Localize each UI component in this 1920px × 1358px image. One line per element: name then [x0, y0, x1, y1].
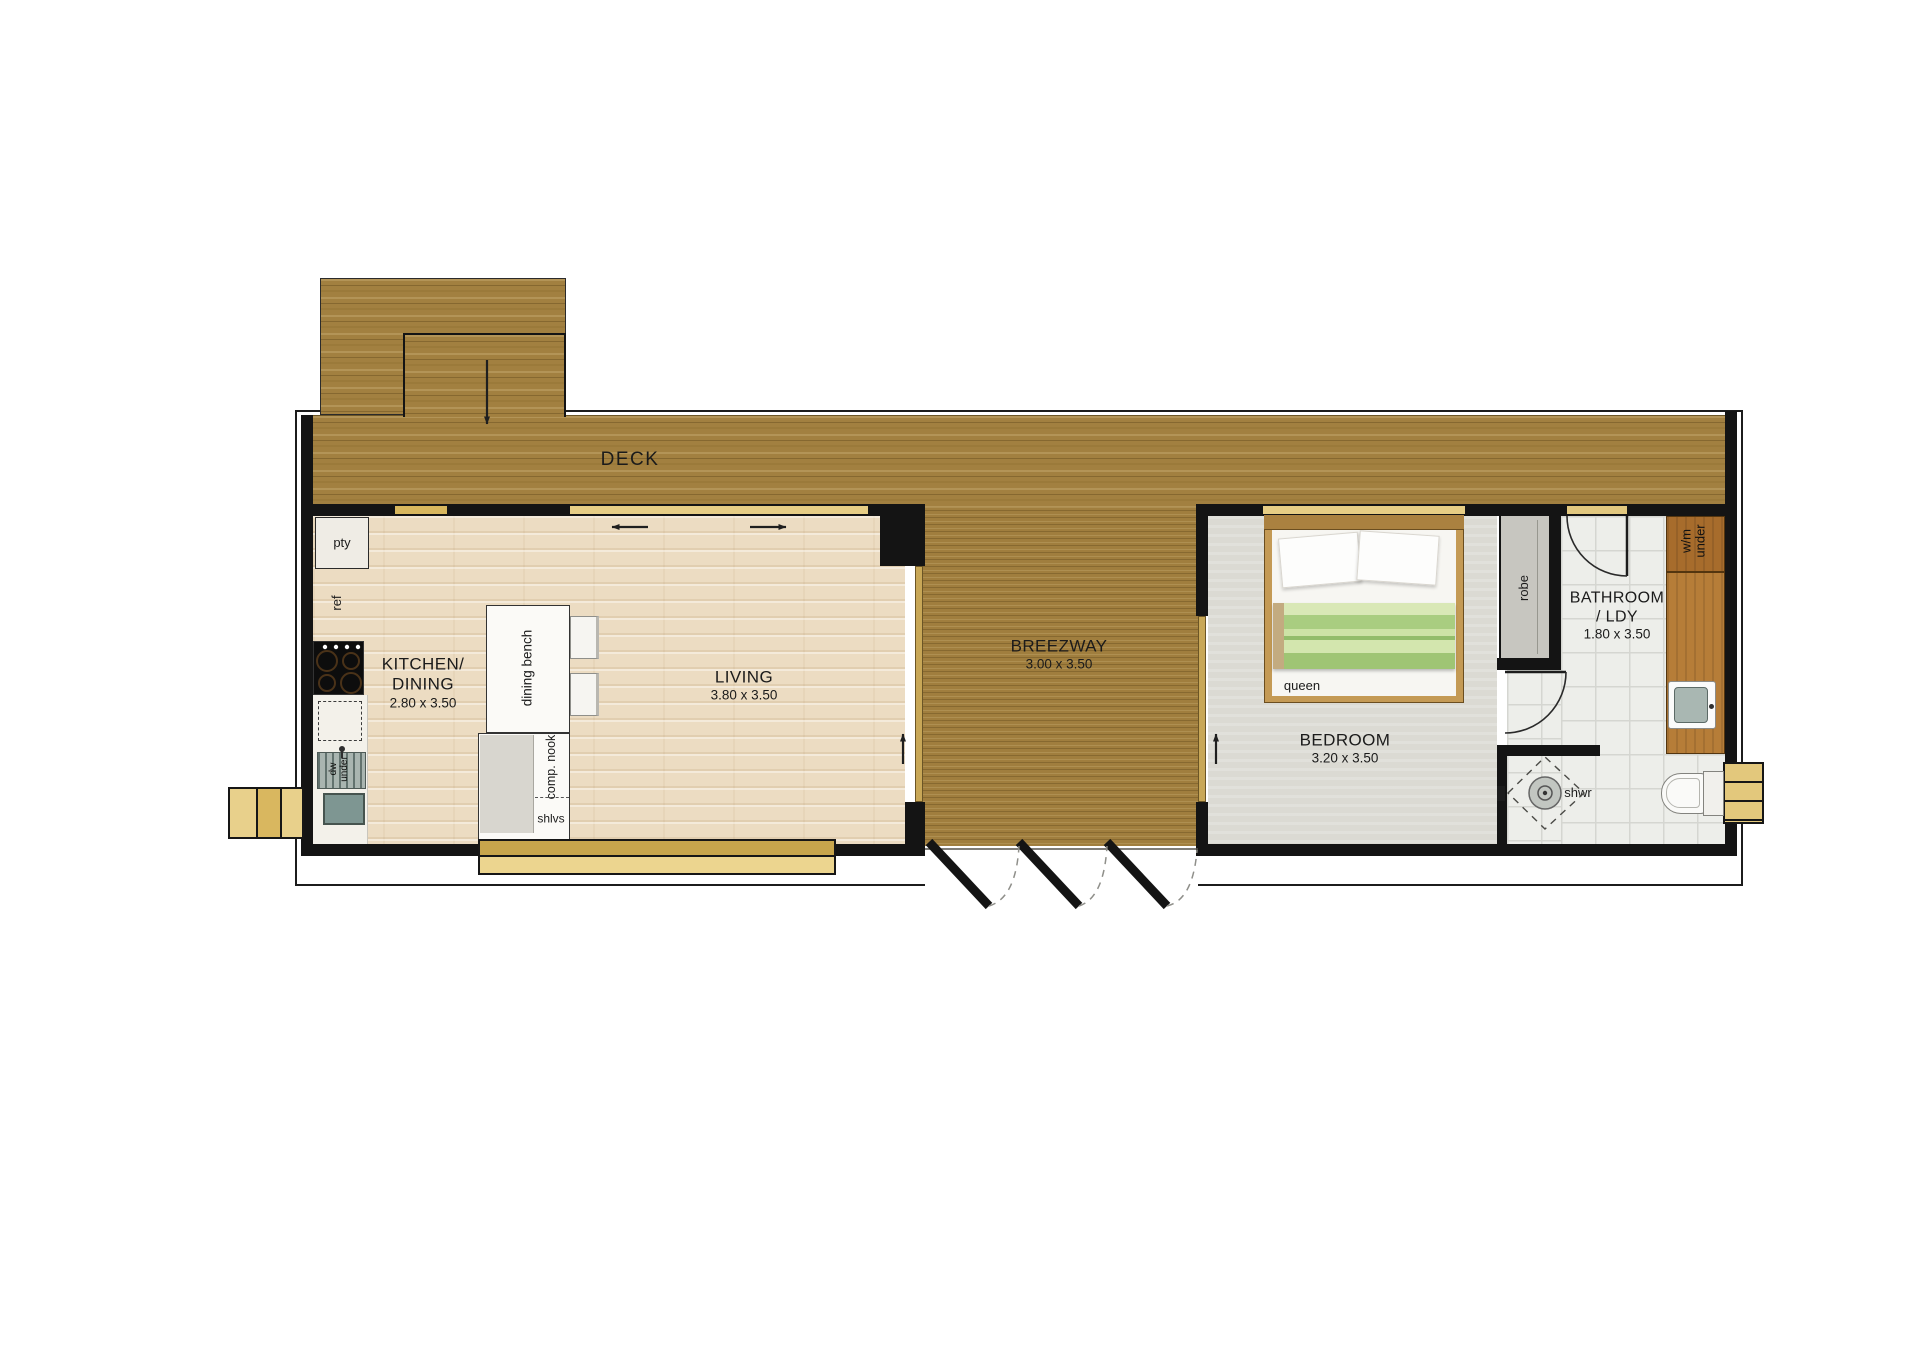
- bifold-door-arc: [1079, 846, 1107, 906]
- wall-right-lower: [1725, 823, 1737, 856]
- kitchen-dining-name-1: KITCHEN/: [382, 655, 465, 675]
- deck-label: DECK: [601, 449, 660, 471]
- vanity-basin: [1674, 687, 1708, 723]
- bathroom-door-sill: [1567, 505, 1627, 515]
- bathroom-window: [1723, 762, 1764, 824]
- stool: [570, 673, 599, 716]
- shelves-label: shlvs: [537, 812, 564, 825]
- deck-area: [313, 415, 1725, 507]
- wall-bottom-east: [1196, 844, 1737, 856]
- living-slider-track: [915, 566, 923, 802]
- wall-shower-stub: [1497, 745, 1600, 756]
- kitchen-dining-dims: 2.80 x 3.50: [382, 695, 465, 711]
- toilet-cistern: [1703, 771, 1724, 816]
- bathroom-dims: 1.80 x 3.50: [1570, 627, 1664, 643]
- cooktop: [313, 641, 364, 695]
- computer-nook-label: comp. nook: [545, 735, 559, 800]
- wall-right-upper: [1725, 411, 1737, 763]
- toilet-bowl: [1661, 773, 1707, 814]
- breezway-dims: 3.00 x 3.50: [1011, 657, 1108, 673]
- stool: [570, 616, 599, 659]
- bathroom-name-1: BATHROOM: [1570, 589, 1664, 608]
- bifold-door-panel: [1107, 842, 1167, 906]
- breezway-name: BREEZWAY: [1011, 637, 1108, 657]
- south-window: [478, 839, 836, 875]
- bed-blanket: [1273, 603, 1455, 669]
- living-window: [570, 505, 868, 515]
- kitchen-dining-label: KITCHEN/ DINING 2.80 x 3.50: [382, 655, 465, 712]
- dishwasher-label: dw under: [328, 756, 350, 782]
- bifold-door-arc: [989, 846, 1019, 906]
- bedroom-dims: 3.20 x 3.50: [1300, 751, 1391, 767]
- roof-outline-bottom-left: [295, 884, 925, 886]
- entry-landing: [403, 333, 566, 417]
- sink-basin: [323, 793, 365, 825]
- wall-breezway-bedroom-top: [1196, 504, 1208, 616]
- dishwasher-outline: [318, 701, 362, 741]
- living-label: LIVING 3.80 x 3.50: [711, 668, 778, 705]
- dining-bench-label: dining bench: [521, 630, 536, 707]
- computer-nook-desk: [480, 735, 534, 833]
- bed-size-label: queen: [1284, 679, 1320, 693]
- bedroom-name: BEDROOM: [1300, 731, 1391, 751]
- breezway-label: BREEZWAY 3.00 x 3.50: [1011, 637, 1108, 674]
- bathroom-name-2: / LDY: [1570, 608, 1664, 627]
- living-name: LIVING: [711, 668, 778, 688]
- bed-headboard: [1264, 515, 1464, 530]
- shower-head-icon: [1497, 786, 1505, 801]
- bedroom-label: BEDROOM 3.20 x 3.50: [1300, 731, 1391, 768]
- basin-tap: [1709, 704, 1714, 709]
- bed-pillow: [1356, 530, 1439, 585]
- kitchen-window: [395, 505, 447, 515]
- fridge-label: ref: [330, 595, 344, 610]
- kitchen-sink-window: [228, 787, 304, 839]
- kitchen-dining-name-2: DINING: [382, 675, 465, 695]
- wardrobe-label: robe: [1517, 575, 1531, 601]
- wall-living-breezway-bottom: [905, 802, 925, 846]
- bathroom-laundry-label: BATHROOM / LDY 1.80 x 3.50: [1570, 589, 1664, 644]
- bedroom-slider-track: [1198, 616, 1206, 802]
- toilet-seat: [1666, 778, 1700, 808]
- floor-plan: pty ref dw under dining bench comp. nook…: [0, 0, 1920, 1358]
- living-dims: 3.80 x 3.50: [711, 688, 778, 704]
- washing-machine-label: w/m under: [1680, 524, 1709, 557]
- roof-outline-bottom-right: [1198, 884, 1743, 886]
- wall-living-breezway-top: [880, 504, 925, 566]
- bed-pillow: [1278, 532, 1362, 589]
- wardrobe-rail: [1537, 520, 1538, 654]
- wall-robe-side: [1551, 504, 1561, 670]
- bedroom-window: [1263, 505, 1465, 515]
- breezway-deck: [923, 507, 1198, 846]
- bifold-door-arc: [1167, 850, 1197, 906]
- bifold-door-panel: [929, 842, 989, 906]
- wall-breezway-bedroom-bottom: [1196, 802, 1208, 846]
- shower-floor: [1507, 670, 1561, 844]
- pantry-label: pty: [333, 536, 350, 550]
- shower-label: shwr: [1564, 786, 1591, 800]
- bifold-door-panel: [1019, 842, 1079, 906]
- burner: [318, 652, 337, 671]
